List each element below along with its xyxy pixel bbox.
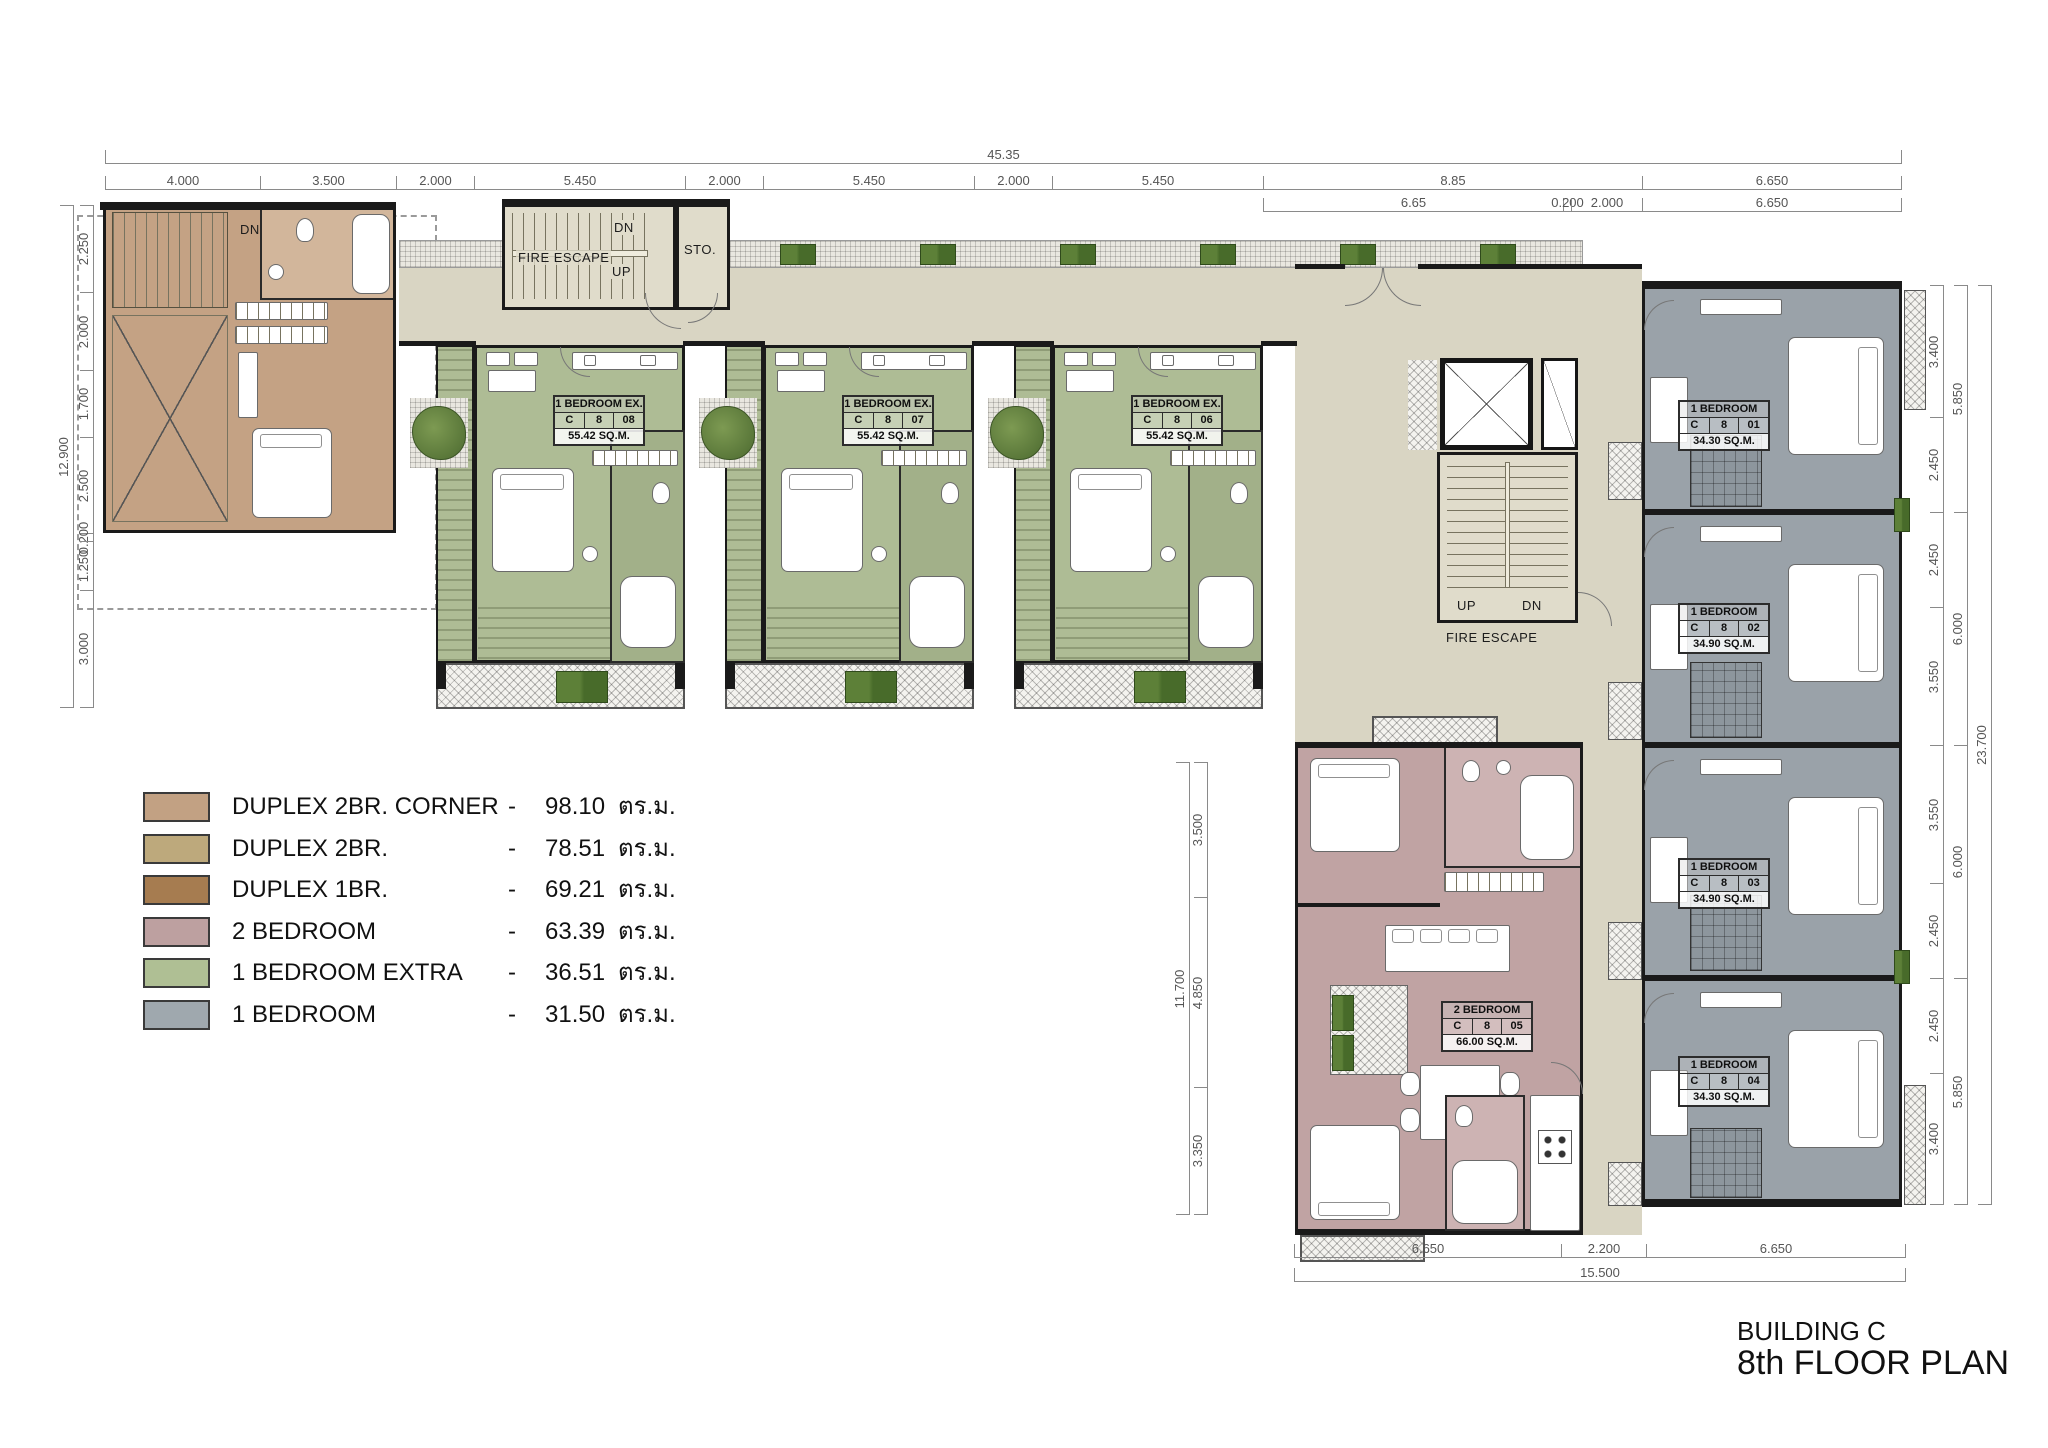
dim-right-subtotals: 5.850 6.000 6.000 5.850 (1954, 285, 1968, 1205)
wall (502, 199, 730, 207)
unit-floor: 8 (1710, 621, 1740, 636)
bathtub (1198, 576, 1254, 648)
wardrobe (1170, 450, 1256, 466)
bathtub (352, 214, 390, 294)
floor-plan-canvas: DN DN FIRE ESCAPE UP STO. 1 BEDROOM EX. … (0, 0, 2048, 1448)
dim-segment: 3.500 (260, 176, 396, 190)
double-height-void (112, 315, 228, 522)
chair (1500, 1072, 1520, 1096)
unit-area: 34.30 SQ.M. (1680, 1090, 1768, 1105)
toilet (296, 218, 314, 242)
wardrobe (235, 326, 328, 344)
unit-floor: 8 (1710, 1074, 1740, 1089)
dn-label: DN (1520, 598, 1544, 613)
unit-deck (725, 345, 763, 663)
dim-segment: 2.000 (974, 176, 1052, 190)
dim-segment: 2.450 (1930, 512, 1944, 607)
legend-swatch (143, 792, 210, 822)
toilet (1455, 1105, 1473, 1127)
bathtub (1452, 1160, 1518, 1224)
dn-label: DN (612, 220, 636, 235)
unit-type: 1 BEDROOM (1680, 860, 1768, 876)
dim-segment: 6.65 (1263, 198, 1563, 212)
table (1066, 370, 1114, 392)
planter-box (1060, 244, 1096, 265)
service-ledge (1608, 1162, 1642, 1206)
duplex-stairs (112, 212, 228, 308)
toilet (1230, 482, 1248, 504)
bathroom-tiled (1690, 1128, 1762, 1198)
chair (1064, 352, 1088, 366)
service-shaft (1541, 358, 1578, 450)
dim-segment: 2.450 (1930, 883, 1944, 978)
side-table (1160, 546, 1176, 562)
wall (1642, 1199, 1902, 1207)
unit-building: C (1680, 418, 1710, 433)
unit-type: 1 BEDROOM (1680, 1058, 1768, 1074)
table (488, 370, 536, 392)
planter-box (1200, 244, 1236, 265)
pillow (1448, 929, 1470, 943)
unit-area: 34.90 SQ.M. (1680, 892, 1768, 907)
unit-label-c806: 1 BEDROOM EX. C806 55.42 SQ.M. (1131, 395, 1223, 446)
dresser (1700, 759, 1782, 775)
dim-segment: 5.850 (1954, 285, 1968, 512)
dim-right-total: 23.700 (1978, 285, 1992, 1205)
legend-label: DUPLEX 2BR. (232, 834, 388, 864)
pillow (1858, 574, 1878, 672)
side-table (871, 546, 887, 562)
unit-code: C807 (844, 413, 932, 429)
dim-segment: 2.250 (80, 205, 94, 292)
legend-swatch (143, 1000, 210, 1030)
unit-number: 08 (614, 413, 643, 428)
planter-box (1894, 498, 1910, 532)
unit-label-c802: 1 BEDROOM C802 34.90 SQ.M. (1678, 603, 1770, 654)
bathtub (909, 576, 965, 648)
pillow (1392, 929, 1414, 943)
unit-code: C802 (1680, 621, 1768, 637)
legend-label: 1 BEDROOM (232, 1000, 376, 1030)
dim-segment: 15.500 (1294, 1268, 1906, 1282)
balcony-planter (845, 671, 897, 703)
bathtub (620, 576, 676, 648)
balcony (1904, 1085, 1926, 1205)
planter-box (1332, 995, 1354, 1031)
unit-type: 1 BEDROOM EX. (844, 397, 932, 413)
dim-mid-total: 11.700 (1176, 762, 1190, 1215)
dim-segment: 1.250 (80, 541, 94, 590)
dn-label: DN (240, 222, 260, 237)
tree (701, 406, 755, 460)
dim-segment: 2.000 (685, 176, 763, 190)
dim-segment: 2.200 (1561, 1244, 1646, 1258)
tree (990, 406, 1044, 460)
chair (514, 352, 538, 366)
dim-segment: 2.450 (1930, 417, 1944, 512)
dim-segment: 12.900 (60, 205, 74, 708)
fire-escape-label: FIRE ESCAPE (1446, 630, 1537, 645)
dim-segment: 8.85 (1263, 176, 1642, 190)
legend-area: 69.21 (545, 875, 605, 905)
wall (725, 663, 735, 689)
dim-segment: 0.200 (1563, 198, 1571, 212)
service-ledge (1608, 922, 1642, 980)
sto-label: STO. (684, 242, 716, 257)
wall (1418, 264, 1642, 269)
unit-code: C803 (1680, 876, 1768, 892)
unit-building: C (555, 413, 585, 428)
dim-segment: 2.000 (1571, 198, 1642, 212)
dim-segment: 6.650 (1642, 176, 1902, 190)
unit-area: 55.42 SQ.M. (555, 429, 643, 444)
wardrobe (1444, 872, 1544, 892)
pillow (1078, 474, 1142, 490)
unit-code: C808 (555, 413, 643, 429)
unit-label-c801: 1 BEDROOM C801 34.30 SQ.M. (1678, 400, 1770, 451)
dim-top-subrow: 6.65 0.200 2.000 6.650 (1263, 198, 1902, 212)
unit-area: 34.90 SQ.M. (1680, 637, 1768, 652)
shaft-hatch (1408, 360, 1437, 450)
pillow (500, 474, 564, 490)
dim-segment: 3.550 (1930, 745, 1944, 883)
legend-unit: ตร.ม. (618, 792, 676, 822)
legend-area: 78.51 (545, 834, 605, 864)
pillow (1858, 807, 1878, 905)
dim-right-segments: 3.400 2.450 2.450 3.550 3.550 2.450 2.45… (1930, 285, 1944, 1205)
legend-dash: - (508, 1000, 516, 1030)
service-ledge (1608, 442, 1642, 500)
unit-type: 1 BEDROOM EX. (555, 397, 643, 413)
wall (1295, 264, 1345, 269)
pillow (1476, 929, 1498, 943)
balcony-planter (1134, 671, 1186, 703)
pillow (1858, 1040, 1878, 1138)
unit-label-c807: 1 BEDROOM EX. C807 55.42 SQ.M. (842, 395, 934, 446)
unit-type: 1 BEDROOM (1680, 605, 1768, 621)
unit-building: C (844, 413, 874, 428)
dim-segment: 2.000 (80, 292, 94, 370)
dim-segment: 3.550 (1930, 607, 1944, 745)
pillow (1420, 929, 1442, 943)
dim-segment: 11.700 (1176, 762, 1190, 1215)
unit-type: 2 BEDROOM (1443, 1003, 1531, 1019)
unit-type: 1 BEDROOM (1680, 402, 1768, 418)
unit-floor: 8 (874, 413, 904, 428)
dim-left-segments: 2.250 2.000 1.700 2.500 0.200 1.250 3.00… (80, 205, 94, 708)
legend-swatch (143, 875, 210, 905)
planter-box (1340, 244, 1376, 265)
basin (268, 264, 284, 280)
fire-escape-label: FIRE ESCAPE (516, 250, 611, 265)
sofa (238, 352, 258, 418)
balcony-planter (556, 671, 608, 703)
stove (929, 355, 945, 366)
dim-segment: 2.500 (80, 437, 94, 533)
wall (100, 202, 396, 210)
legend-area: 63.39 (545, 917, 605, 947)
pillow (1858, 347, 1878, 445)
title-floor: 8th FLOOR PLAN (1737, 1344, 2009, 1383)
table (777, 370, 825, 392)
unit-building: C (1680, 621, 1710, 636)
bathtub (1520, 775, 1574, 860)
dim-segment: 3.350 (1194, 1087, 1208, 1215)
unit-number: 07 (903, 413, 932, 428)
dim-segment: 2.000 (396, 176, 474, 190)
unit-label-c804: 1 BEDROOM C804 34.30 SQ.M. (1678, 1056, 1770, 1107)
service-ledge (1608, 682, 1642, 740)
pillow (789, 474, 853, 490)
unit-area: 55.42 SQ.M. (1133, 429, 1221, 444)
pillow (1318, 1202, 1390, 1216)
dim-segment: 5.450 (1052, 176, 1263, 190)
chair (486, 352, 510, 366)
balcony (1904, 290, 1926, 410)
legend-dash: - (508, 792, 516, 822)
bathroom-tiled (1690, 662, 1762, 738)
dim-bottom-segments: 6.650 2.200 6.650 (1294, 1244, 1906, 1258)
wall (1014, 663, 1024, 689)
legend-swatch (143, 834, 210, 864)
unit-code: C804 (1680, 1074, 1768, 1090)
legend-swatch (143, 958, 210, 988)
unit-number: 02 (1739, 621, 1768, 636)
dresser (1700, 526, 1782, 542)
dim-left-total: 12.900 (60, 205, 74, 708)
unit-building: C (1443, 1019, 1473, 1034)
dim-segment: 3.500 (1194, 762, 1208, 897)
legend-label: 2 BEDROOM (232, 917, 376, 947)
legend-area: 98.10 (545, 792, 605, 822)
planter-box (1332, 1035, 1354, 1071)
unit-building: C (1680, 876, 1710, 891)
dim-segment: 3.000 (80, 590, 94, 708)
legend-dash: - (508, 834, 516, 864)
legend-dash: - (508, 875, 516, 905)
unit-code: C806 (1133, 413, 1221, 429)
stove (1218, 355, 1234, 366)
legend-unit: ตร.ม. (618, 1000, 676, 1030)
wall (436, 663, 446, 689)
unit-building: C (1133, 413, 1163, 428)
dim-segment: 6.650 (1642, 198, 1902, 212)
wall (1642, 281, 1902, 289)
unit-deck (1014, 345, 1052, 663)
wardrobe (592, 450, 678, 466)
dim-segment: 5.450 (474, 176, 685, 190)
basin (1496, 760, 1511, 775)
dim-segment: 6.650 (1646, 1244, 1906, 1258)
dim-segment: 3.400 (1930, 1073, 1944, 1205)
dim-top-segments: 4.000 3.500 2.000 5.450 2.000 5.450 2.00… (105, 176, 1902, 190)
legend-unit: ตร.ม. (618, 958, 676, 988)
unit-floor: 8 (585, 413, 615, 428)
stove (1538, 1130, 1572, 1164)
legend-unit: ตร.ม. (618, 834, 676, 864)
wardrobe (881, 450, 967, 466)
unit-code: C801 (1680, 418, 1768, 434)
dim-segment: 5.450 (763, 176, 974, 190)
unit-floor: 8 (1473, 1019, 1503, 1034)
dim-segment: 6.650 (1294, 1244, 1561, 1258)
legend-area: 36.51 (545, 958, 605, 988)
dresser (1700, 299, 1782, 315)
dim-bottom-total: 15.500 (1294, 1268, 1906, 1282)
unit-number: 01 (1739, 418, 1768, 433)
unit-type: 1 BEDROOM EX. (1133, 397, 1221, 413)
unit-number: 06 (1192, 413, 1221, 428)
unit-area: 55.42 SQ.M. (844, 429, 932, 444)
pillow (1318, 764, 1390, 778)
dim-segment: 6.000 (1954, 512, 1968, 745)
tree (412, 406, 466, 460)
wardrobe (235, 302, 328, 320)
title-building: BUILDING C (1737, 1316, 1886, 1347)
wall (1261, 341, 1297, 346)
legend-unit: ตร.ม. (618, 875, 676, 905)
wall (1295, 903, 1440, 907)
chair (775, 352, 799, 366)
chair (1092, 352, 1116, 366)
chair (803, 352, 827, 366)
dim-segment: 5.850 (1954, 978, 1968, 1205)
balcony (1372, 716, 1498, 745)
legend-dash: - (508, 917, 516, 947)
dim-segment: 0.200 (80, 533, 94, 541)
dim-segment: 6.000 (1954, 745, 1968, 978)
wall (964, 663, 974, 689)
unit-floor: 8 (1710, 876, 1740, 891)
unit-number: 05 (1502, 1019, 1531, 1034)
unit-label-c803: 1 BEDROOM C803 34.90 SQ.M. (1678, 858, 1770, 909)
dim-segment: 4.000 (105, 176, 260, 190)
dim-segment: 1.700 (80, 370, 94, 437)
unit-number: 03 (1739, 876, 1768, 891)
dim-segment: 23.700 (1978, 285, 1992, 1205)
planter-box (1894, 950, 1910, 984)
pillow (260, 434, 322, 448)
legend-unit: ตร.ม. (618, 917, 676, 947)
legend-label: DUPLEX 2BR. CORNER (232, 792, 499, 822)
unit-code: C805 (1443, 1019, 1531, 1035)
unit-deck (436, 345, 474, 663)
wall (1253, 663, 1263, 689)
unit-number: 04 (1739, 1074, 1768, 1089)
planter-box (1480, 244, 1516, 265)
dresser (1700, 992, 1782, 1008)
toilet (1462, 760, 1480, 782)
unit-area: 34.30 SQ.M. (1680, 434, 1768, 449)
toilet (941, 482, 959, 504)
toilet (652, 482, 670, 504)
legend-dash: - (508, 958, 516, 988)
unit-label-c805: 2 BEDROOM C805 66.00 SQ.M. (1441, 1001, 1533, 1052)
dim-top-total: 45.35 (105, 150, 1902, 164)
unit-floor: 8 (1710, 418, 1740, 433)
dim-segment: 3.400 (1930, 285, 1944, 417)
chair (1400, 1072, 1420, 1096)
unit-label-c808: 1 BEDROOM EX. C808 55.42 SQ.M. (553, 395, 645, 446)
dim-segment: 2.450 (1930, 978, 1944, 1073)
side-table (582, 546, 598, 562)
planter-box (920, 244, 956, 265)
stove (640, 355, 656, 366)
chair (1400, 1108, 1420, 1132)
wall (675, 663, 685, 689)
unit-floor: 8 (1163, 413, 1193, 428)
unit-building: C (1680, 1074, 1710, 1089)
stair-rail (1505, 462, 1510, 588)
elevator (1440, 358, 1533, 450)
up-label: UP (610, 264, 633, 279)
planter-box (780, 244, 816, 265)
legend-area: 31.50 (545, 1000, 605, 1030)
up-label: UP (1455, 598, 1478, 613)
legend-swatch (143, 917, 210, 947)
dim-segment: 4.850 (1194, 897, 1208, 1087)
dim-segment: 45.35 (105, 150, 1902, 164)
legend-label: DUPLEX 1BR. (232, 875, 388, 905)
unit-area: 66.00 SQ.M. (1443, 1035, 1531, 1050)
dim-mid-segments: 3.500 4.850 3.350 (1194, 762, 1208, 1215)
legend-label: 1 BEDROOM EXTRA (232, 958, 463, 988)
